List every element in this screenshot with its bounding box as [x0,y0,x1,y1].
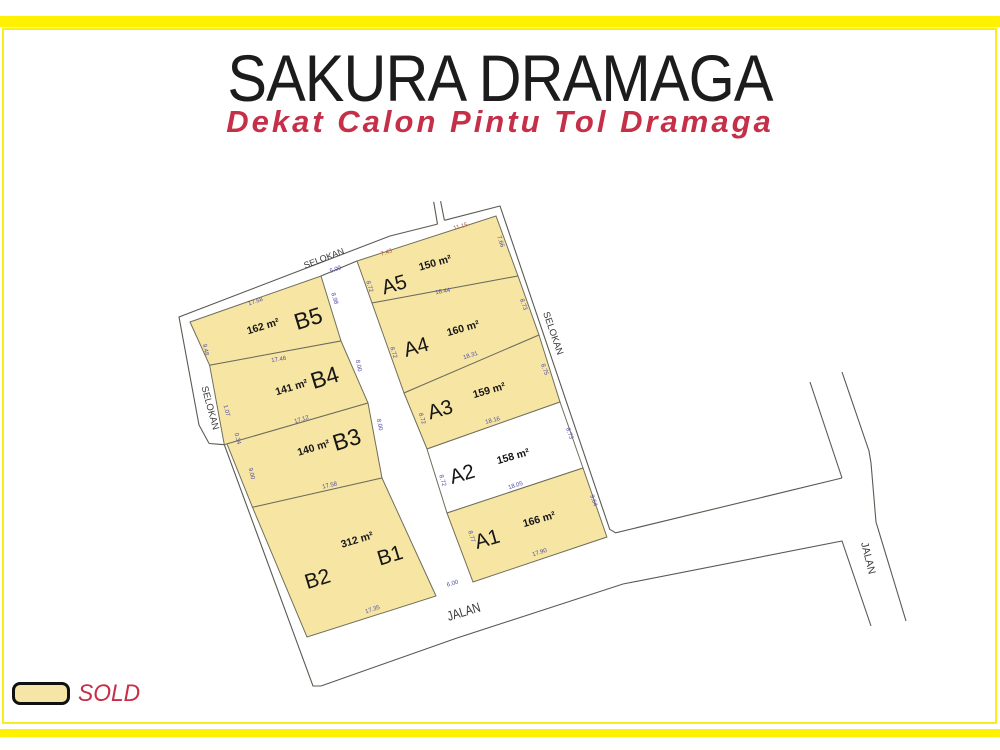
svg-text:8.98: 8.98 [329,292,338,306]
svg-text:6.00: 6.00 [446,579,460,588]
svg-text:9.48: 9.48 [201,343,209,356]
svg-text:JALAN: JALAN [445,600,482,624]
svg-text:5.00: 5.00 [329,265,343,275]
svg-text:8.00: 8.00 [375,418,383,431]
svg-text:8.00: 8.00 [354,359,362,372]
svg-text:JALAN: JALAN [858,541,878,576]
